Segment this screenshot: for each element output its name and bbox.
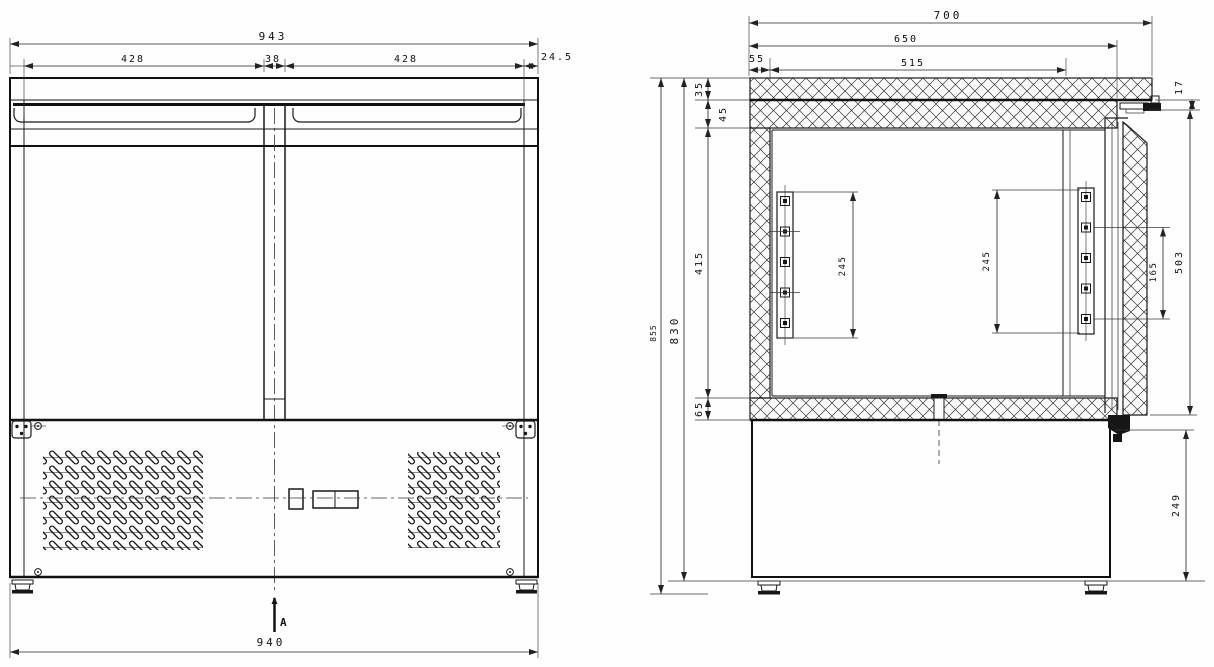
dim-side-35: 35 bbox=[694, 81, 705, 97]
dim-side-245-right: 245 bbox=[982, 251, 992, 272]
dim-side-415: 415 bbox=[694, 251, 705, 275]
section-label: A bbox=[280, 616, 287, 629]
dim-side-249: 249 bbox=[1171, 493, 1182, 517]
dim-side-855: 855 bbox=[649, 324, 658, 341]
bottom-hinge bbox=[1108, 415, 1130, 435]
vent-grille-left bbox=[43, 450, 203, 550]
control-panel bbox=[289, 489, 358, 509]
front-foot-right bbox=[516, 580, 537, 594]
dim-front-428-right: 428 bbox=[394, 54, 418, 65]
worktop-slab-top-layer bbox=[750, 78, 1152, 100]
dim-side-165: 165 bbox=[1149, 262, 1159, 283]
side-foot-back bbox=[758, 581, 780, 595]
corner-bracket-right bbox=[516, 421, 535, 438]
dim-front-940: 940 bbox=[257, 636, 286, 649]
dim-front-943: 943 bbox=[259, 30, 288, 43]
dim-side-55: 55 bbox=[749, 54, 765, 65]
vent-grille-right bbox=[408, 452, 500, 548]
corner-bracket-left bbox=[12, 421, 31, 438]
side-foot-front bbox=[1085, 581, 1107, 595]
dimension-overall-width: 943 bbox=[10, 30, 538, 74]
front-view: A 943 428 38 428 24.5 bbox=[10, 30, 573, 658]
dim-side-65: 65 bbox=[694, 401, 705, 417]
back-wall-insulation bbox=[750, 128, 770, 398]
bottom-hinge-pin bbox=[1113, 434, 1122, 442]
handle-recess-right bbox=[293, 108, 521, 122]
dim-front-38: 38 bbox=[265, 54, 281, 65]
front-foot-left bbox=[12, 580, 33, 594]
dim-side-650: 650 bbox=[894, 34, 918, 45]
dim-side-17: 17 bbox=[1174, 79, 1185, 95]
worktop-slab-bottom-layer bbox=[750, 100, 1117, 128]
door-top-lip2 bbox=[1126, 109, 1144, 113]
dim-side-45: 45 bbox=[718, 106, 729, 122]
dim-front-24-5: 24.5 bbox=[541, 52, 573, 63]
shelf-rack-right bbox=[1078, 181, 1094, 341]
dim-side-503: 503 bbox=[1174, 250, 1185, 274]
drawing-sheet: A 943 428 38 428 24.5 bbox=[0, 0, 1214, 667]
dimension-racks: 245 245 165 bbox=[779, 190, 1170, 338]
control-switch bbox=[289, 489, 303, 509]
dim-side-700: 700 bbox=[934, 9, 963, 22]
dim-side-830: 830 bbox=[668, 316, 681, 345]
cad-canvas: A 943 428 38 428 24.5 bbox=[0, 0, 1214, 667]
door-insulation bbox=[1123, 122, 1147, 415]
handle-recess-left bbox=[14, 108, 255, 122]
dim-front-428-left: 428 bbox=[121, 54, 145, 65]
side-section-view: 700 650 55 515 35 45 415 65 830 bbox=[649, 9, 1205, 595]
dim-side-245-left: 245 bbox=[838, 256, 848, 277]
base-compartment bbox=[752, 420, 1110, 577]
section-marker: A bbox=[272, 597, 288, 632]
shelf-rack-left bbox=[770, 185, 800, 345]
dim-side-515: 515 bbox=[901, 58, 925, 69]
